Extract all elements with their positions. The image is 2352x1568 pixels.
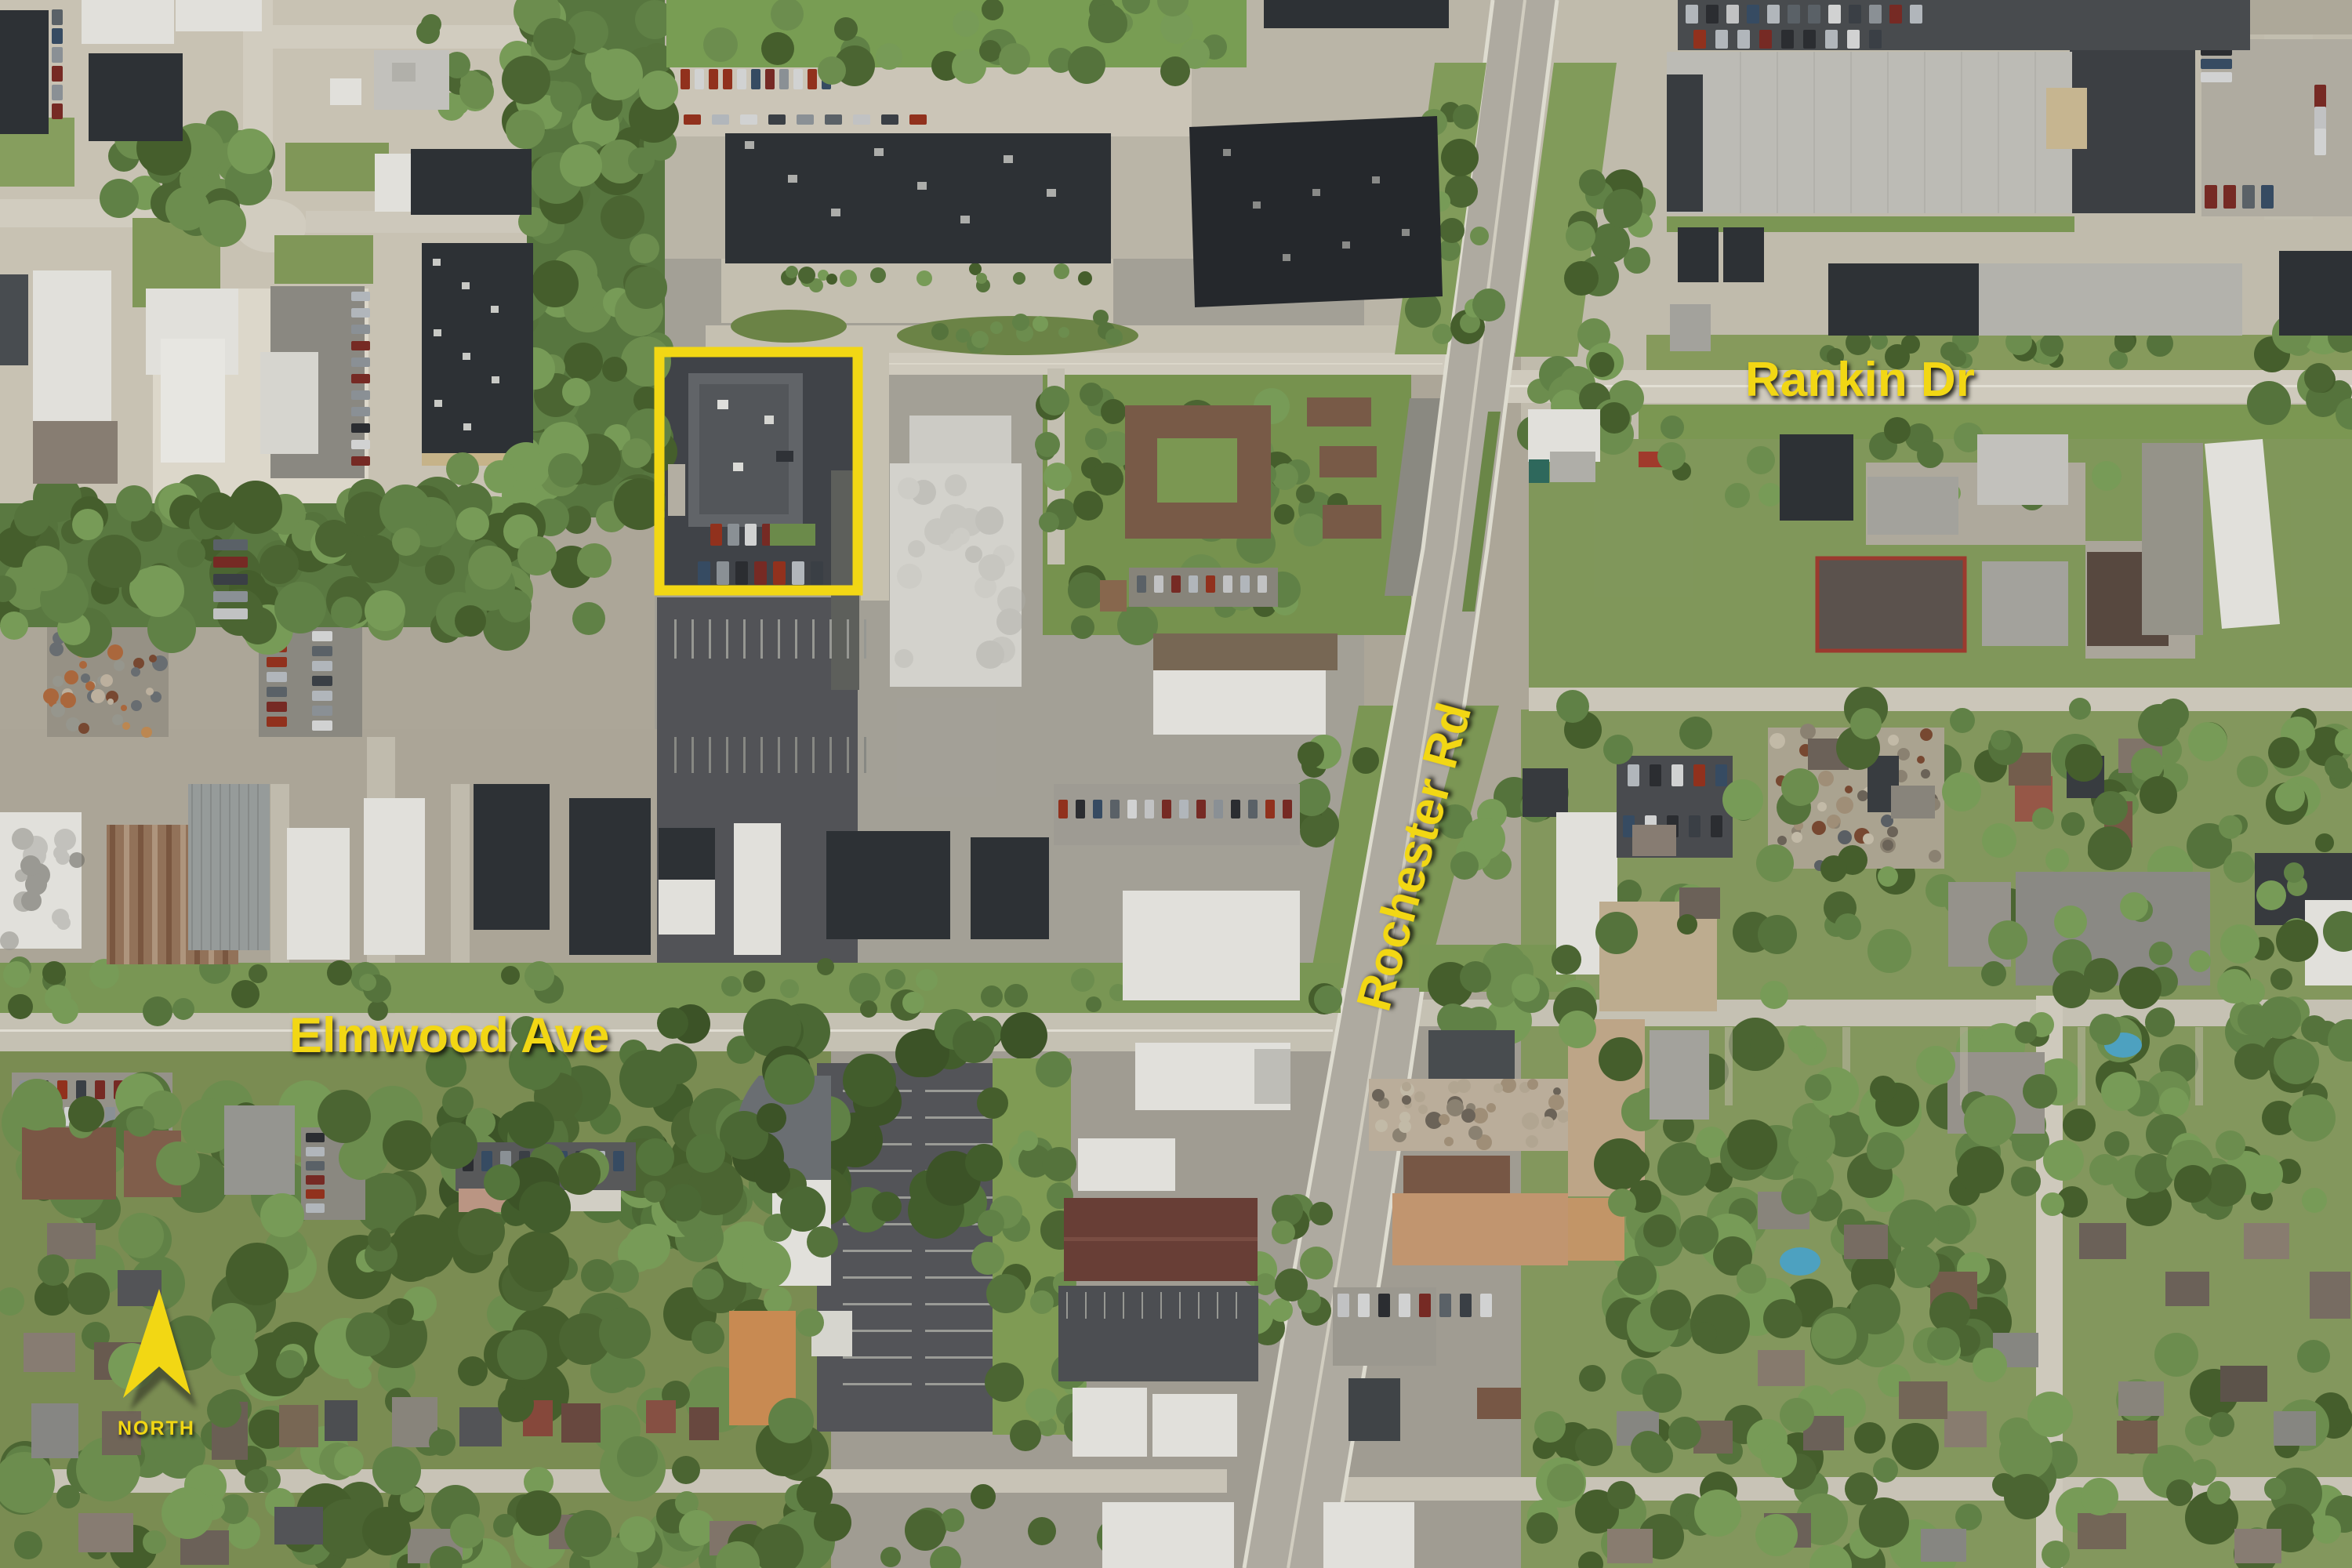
svg-text:Elmwood Ave: Elmwood Ave [289,1008,609,1063]
svg-text:Rankin Dr: Rankin Dr [1745,353,1975,407]
svg-text:NORTH: NORTH [118,1417,195,1439]
